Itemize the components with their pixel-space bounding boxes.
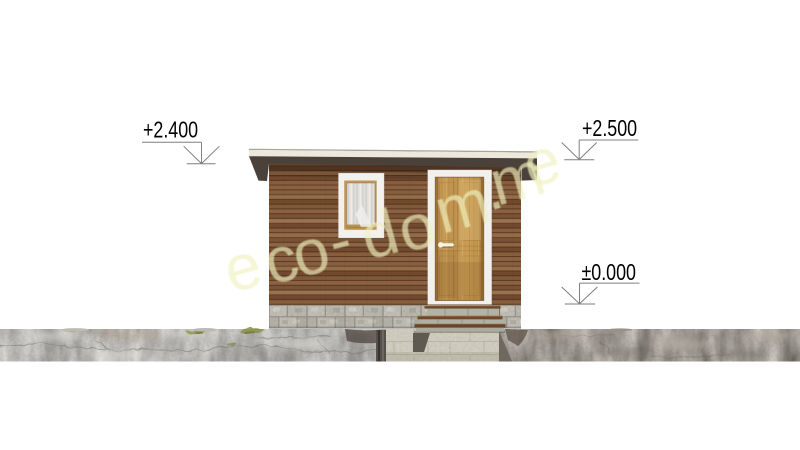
svg-text:±0.000: ±0.000	[582, 260, 636, 286]
svg-text:+2.500: +2.500	[582, 116, 637, 142]
svg-text:+2.400: +2.400	[143, 117, 198, 143]
